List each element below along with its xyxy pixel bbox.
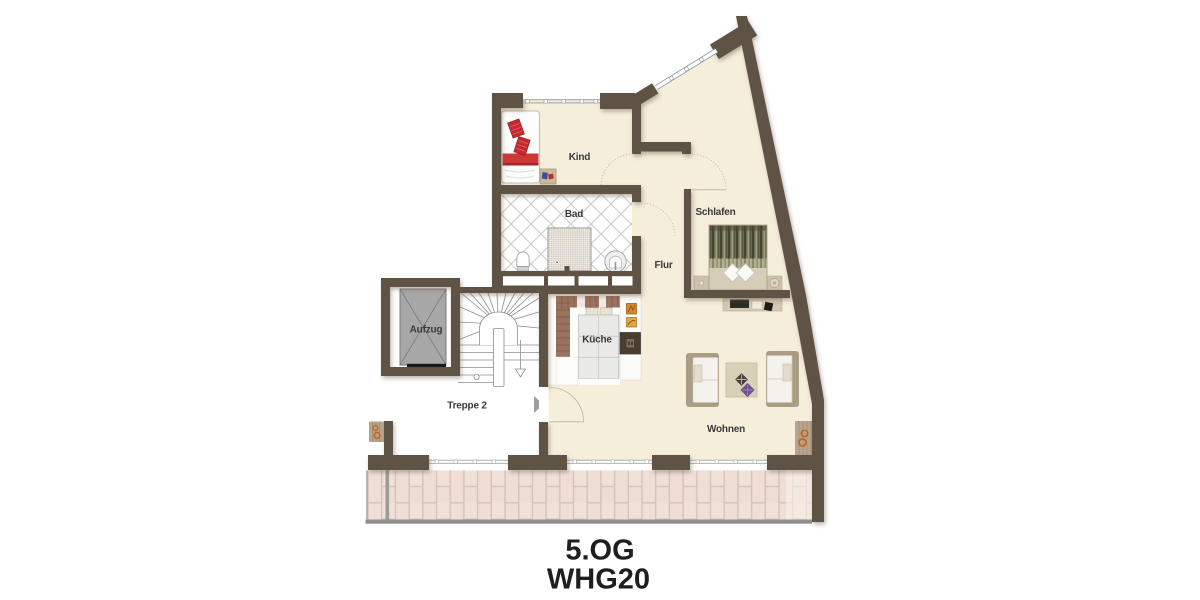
svg-text:Treppe 2: Treppe 2: [447, 401, 487, 412]
svg-text:Bad: Bad: [565, 209, 583, 220]
svg-text:Küche: Küche: [582, 335, 612, 346]
svg-text:Wohnen: Wohnen: [707, 424, 745, 435]
svg-text:Schlafen: Schlafen: [695, 207, 735, 218]
svg-text:Kind: Kind: [569, 152, 591, 163]
svg-text:5.OG: 5.OG: [565, 535, 634, 567]
svg-text:Aufzug: Aufzug: [410, 325, 443, 336]
svg-text:WHG20: WHG20: [547, 564, 650, 596]
svg-text:Flur: Flur: [654, 260, 672, 271]
